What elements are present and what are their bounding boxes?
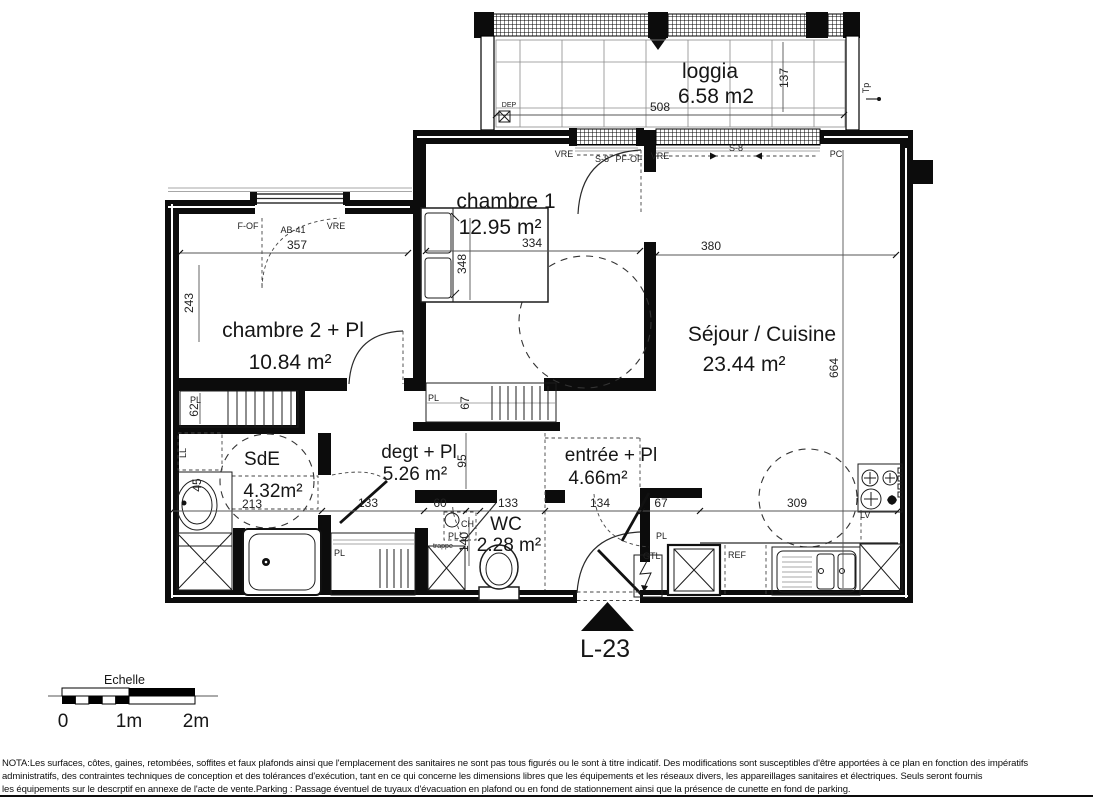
trappe-tag: trappe xyxy=(433,543,453,550)
chambre2-name: chambre 2 + Pl xyxy=(222,319,364,342)
s8-tag-2: S-8 xyxy=(729,143,743,153)
bottom-rule xyxy=(0,795,1093,797)
chambre2-width-dim: 357 xyxy=(287,238,307,252)
lv-tag: LV xyxy=(860,510,870,520)
wc-niche-dim: 60 xyxy=(433,496,447,510)
sde-name: SdE xyxy=(244,449,280,470)
wc-name: WC xyxy=(490,514,522,535)
loggia-deck-grid xyxy=(496,40,845,127)
pl-tag-2: PL xyxy=(428,393,439,403)
ll-tag: LL xyxy=(178,448,188,458)
floor-plan-drawing: loggia 6.58 m2 508 137 DEP Tp xyxy=(0,0,1093,800)
loggia-depth-dim: 137 xyxy=(777,68,791,88)
entree-area: 4.66m² xyxy=(568,468,627,489)
pl2-depth-dim: 67 xyxy=(458,396,472,410)
ab41-tag: AB-41 xyxy=(280,225,305,235)
pl-tag-5: PL xyxy=(448,531,459,541)
scale-one: 1m xyxy=(116,711,142,732)
floor-plan-page: loggia 6.58 m2 508 137 DEP Tp xyxy=(0,0,1093,800)
wc-width-dim: 133 xyxy=(498,496,518,510)
fof-tag: F-OF xyxy=(238,221,259,231)
sde-door-dim: 133 xyxy=(358,496,378,510)
dep-label: DEP xyxy=(502,102,517,109)
shaft-box-right xyxy=(860,544,902,592)
washbasin xyxy=(177,472,232,546)
vre-tag-1: VRE xyxy=(555,149,574,159)
kitchen-width-dim: 309 xyxy=(787,496,807,510)
ch-tag: CH xyxy=(461,519,474,529)
degt-name: degt + Pl xyxy=(381,442,457,463)
nota-line-3: les équipements sur le descrptif en anne… xyxy=(2,784,850,795)
nota-line-1: NOTA:Les surfaces, côtes, gaines, retomb… xyxy=(2,758,1028,769)
tp-icon xyxy=(866,97,881,101)
entrance-door-leaf xyxy=(598,550,641,594)
chambre1-name: chambre 1 xyxy=(456,190,555,213)
loggia-width-dim: 508 xyxy=(650,100,670,114)
hall-depth-dim: 95 xyxy=(455,454,469,468)
wc-area: 2.28 m² xyxy=(477,535,541,556)
shaft-box-entry xyxy=(668,545,720,595)
cooktop xyxy=(858,464,902,512)
gtl-tag: GTL xyxy=(643,551,661,561)
wc-depth-dim: 140 xyxy=(457,532,471,552)
shower-tray xyxy=(243,529,321,595)
scale-two: 2m xyxy=(183,711,209,732)
scale-title: Echelle xyxy=(104,673,145,687)
tp-label: Tp xyxy=(861,83,871,94)
entree-name: entrée + Pl xyxy=(565,445,657,466)
entrance-arrow xyxy=(581,602,634,631)
pl2-closet xyxy=(426,383,556,422)
pl1-depth-dim: 62 xyxy=(187,403,201,417)
chambre1-depth-dim: 348 xyxy=(455,254,469,274)
s8-tag-1: S-8 xyxy=(595,154,609,164)
sejour-area: 23.44 m² xyxy=(703,353,786,376)
pl3-closet xyxy=(331,533,415,595)
lot-number: L-23 xyxy=(580,635,630,663)
dep-icon xyxy=(499,111,510,122)
pl-tag-4: PL xyxy=(656,531,667,541)
pl-tag-3: PL xyxy=(334,548,345,558)
vre-tag-2: VRE xyxy=(651,151,670,161)
basin-width-dim: 45 xyxy=(190,478,204,492)
shaft-box-left xyxy=(177,533,232,590)
scale-zero: 0 xyxy=(58,711,69,732)
entree-pl-width-dim: 67 xyxy=(654,496,668,510)
chambre2-area: 10.84 m² xyxy=(249,351,332,374)
railing-notch xyxy=(648,36,668,50)
chambre2-depth-dim: 243 xyxy=(182,293,196,313)
scale-bar: Echelle 0 1m 2m xyxy=(48,673,218,732)
sejour-depth-dim: 664 xyxy=(827,358,841,378)
nota-line-2: administratifs, des contraintes techniqu… xyxy=(2,771,982,782)
sejour-name: Séjour / Cuisine xyxy=(688,323,836,346)
degt-area: 5.26 m² xyxy=(383,464,447,485)
pfof-tag: PF-OF xyxy=(616,154,643,164)
loggia-area: 6.58 m2 xyxy=(678,85,754,108)
entrance: L-23 xyxy=(577,592,640,663)
kitchen-sink xyxy=(772,547,860,595)
pc-tag: PC xyxy=(830,149,843,159)
ref-tag: REF xyxy=(728,550,747,560)
chambre1-width-dim: 334 xyxy=(522,236,542,250)
pl-tag-1: PL xyxy=(190,395,201,405)
sde-width-dim: 213 xyxy=(242,497,262,511)
vre-tag-3: VRE xyxy=(327,221,346,231)
loggia-balcony: loggia 6.58 m2 508 137 DEP Tp xyxy=(474,12,881,130)
sejour-width-dim: 380 xyxy=(701,239,721,253)
loggia-name: loggia xyxy=(682,60,738,83)
entree-width-dim: 134 xyxy=(590,496,610,510)
